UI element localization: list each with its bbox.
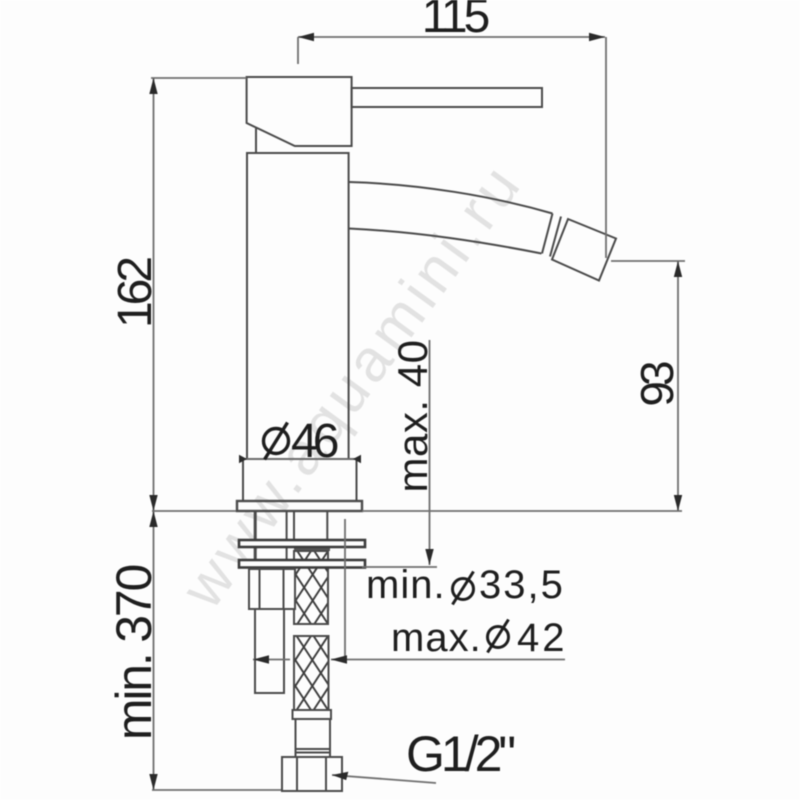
svg-text:min. 370: min. 370 — [106, 566, 162, 741]
svg-text:42: 42 — [517, 616, 568, 660]
svg-text:min.: min. — [366, 563, 446, 607]
svg-text:33,5: 33,5 — [479, 563, 565, 607]
svg-text:93: 93 — [631, 362, 683, 407]
svg-text:G1/2": G1/2" — [406, 726, 514, 782]
svg-text:max.: max. — [391, 616, 482, 660]
svg-text:162: 162 — [109, 258, 162, 328]
svg-text:max. 40: max. 40 — [389, 340, 436, 493]
svg-text:115: 115 — [422, 0, 489, 43]
svg-text:46: 46 — [291, 415, 338, 468]
